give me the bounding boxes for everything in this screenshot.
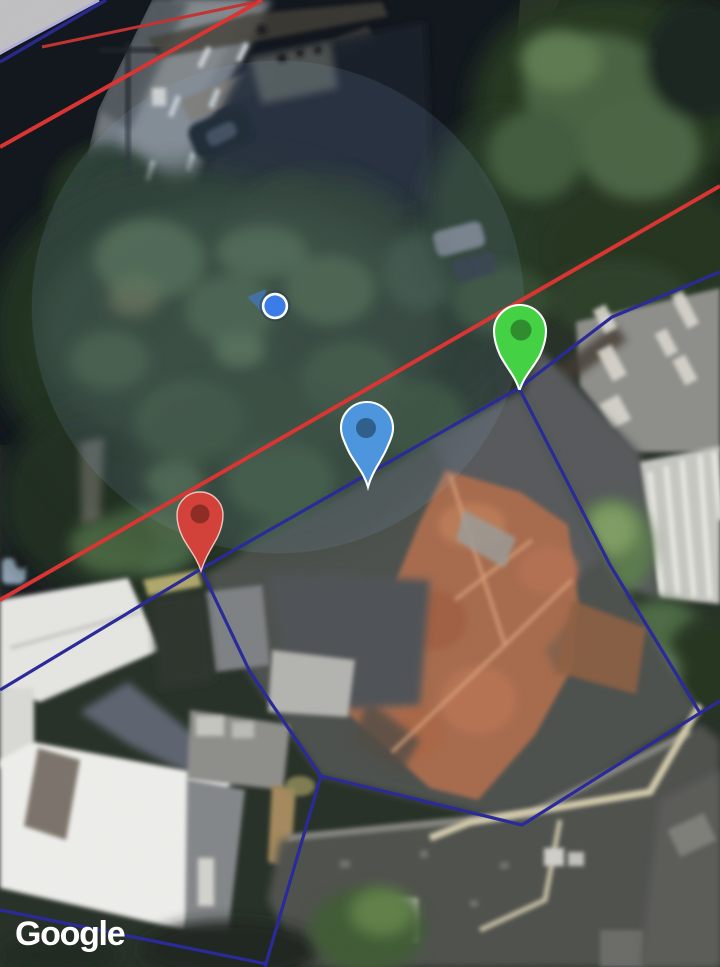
svg-text:Google: Google <box>15 915 125 953</box>
